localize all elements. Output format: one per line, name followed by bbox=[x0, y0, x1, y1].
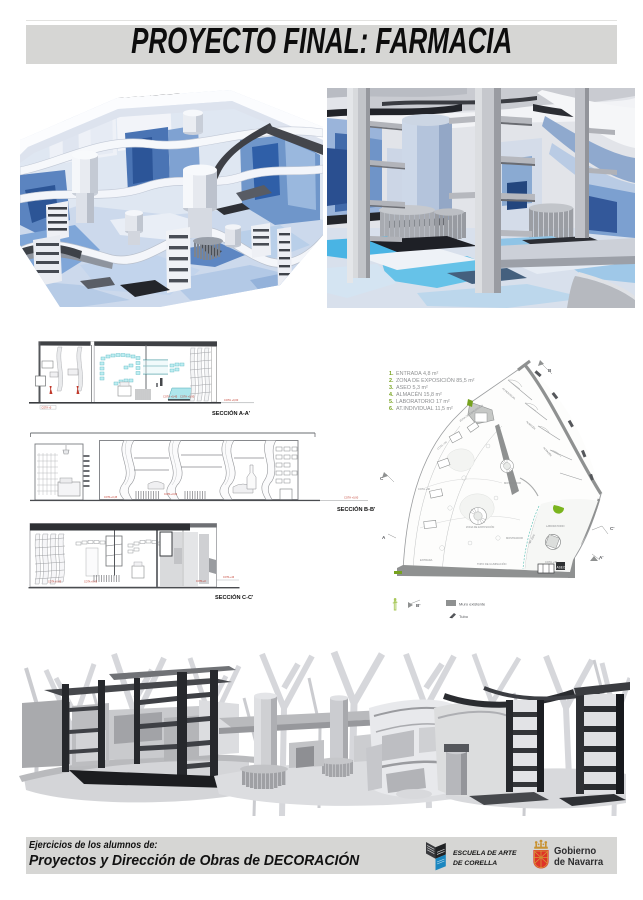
svg-text:ZONA DE EXPOSICIÓN 85,5 m²: ZONA DE EXPOSICIÓN 85,5 m² bbox=[396, 377, 475, 384]
svg-text:MOSTRADOR: MOSTRADOR bbox=[506, 536, 523, 540]
svg-text:ASEO: ASEO bbox=[557, 566, 566, 570]
svg-text:4.: 4. bbox=[389, 392, 394, 398]
svg-text:COTA +0,45: COTA +0,45 bbox=[84, 581, 98, 584]
svg-text:C': C' bbox=[610, 526, 614, 531]
svg-text:AT.INDIVIDUAL 11,5 m²: AT.INDIVIDUAL 11,5 m² bbox=[396, 406, 453, 412]
svg-text:A: A bbox=[382, 535, 386, 540]
svg-text:Tubo: Tubo bbox=[459, 614, 469, 619]
svg-text:5.: 5. bbox=[389, 399, 394, 405]
svg-text:SECCIÓN B-B': SECCIÓN B-B' bbox=[337, 505, 376, 513]
svg-text:2.: 2. bbox=[389, 378, 394, 384]
svg-text:COTA +0,00: COTA +0,00 bbox=[180, 395, 195, 399]
svg-text:COTA +0,45: COTA +0,45 bbox=[104, 496, 118, 499]
svg-text:ASEO 5,3 m²: ASEO 5,3 m² bbox=[396, 385, 428, 391]
svg-text:COTA +0,45: COTA +0,45 bbox=[48, 581, 62, 584]
svg-text:COTA +46: COTA +46 bbox=[223, 576, 235, 579]
svg-text:LABORATORIO: LABORATORIO bbox=[546, 524, 565, 528]
svg-text:COTA +0,00: COTA +0,00 bbox=[344, 496, 359, 500]
svg-text:COTA +46: COTA +46 bbox=[418, 487, 431, 491]
svg-text:ENTRADA 4,8 m²: ENTRADA 4,8 m² bbox=[396, 371, 438, 377]
svg-text:LABORATORIO 17 m²: LABORATORIO 17 m² bbox=[396, 399, 450, 405]
svg-text:SECCIÓN A-A': SECCIÓN A-A' bbox=[212, 409, 251, 417]
svg-text:COTA +0: COTA +0 bbox=[196, 580, 206, 583]
svg-text:A': A' bbox=[599, 555, 603, 560]
svg-text:COTA +0,45: COTA +0,45 bbox=[163, 395, 178, 399]
svg-text:SECCIÓN C-C': SECCIÓN C-C' bbox=[215, 593, 254, 601]
svg-text:1.: 1. bbox=[389, 371, 394, 377]
svg-text:COTA +46: COTA +46 bbox=[545, 560, 558, 564]
svg-text:COTA +0: COTA +0 bbox=[42, 406, 52, 409]
svg-text:MOSTRADOR: MOSTRADOR bbox=[504, 481, 521, 485]
svg-text:Muro existente: Muro existente bbox=[459, 602, 486, 607]
svg-text:3.: 3. bbox=[389, 385, 394, 391]
svg-text:COTA +0,00: COTA +0,00 bbox=[164, 493, 178, 496]
svg-text:COTA +0,00: COTA +0,00 bbox=[224, 398, 239, 402]
svg-text:ALMACÉN 15,8 m²: ALMACÉN 15,8 m² bbox=[396, 391, 442, 398]
svg-text:6.: 6. bbox=[389, 406, 394, 412]
svg-text:ENTRADA: ENTRADA bbox=[420, 558, 433, 562]
svg-text:B': B' bbox=[416, 603, 420, 608]
